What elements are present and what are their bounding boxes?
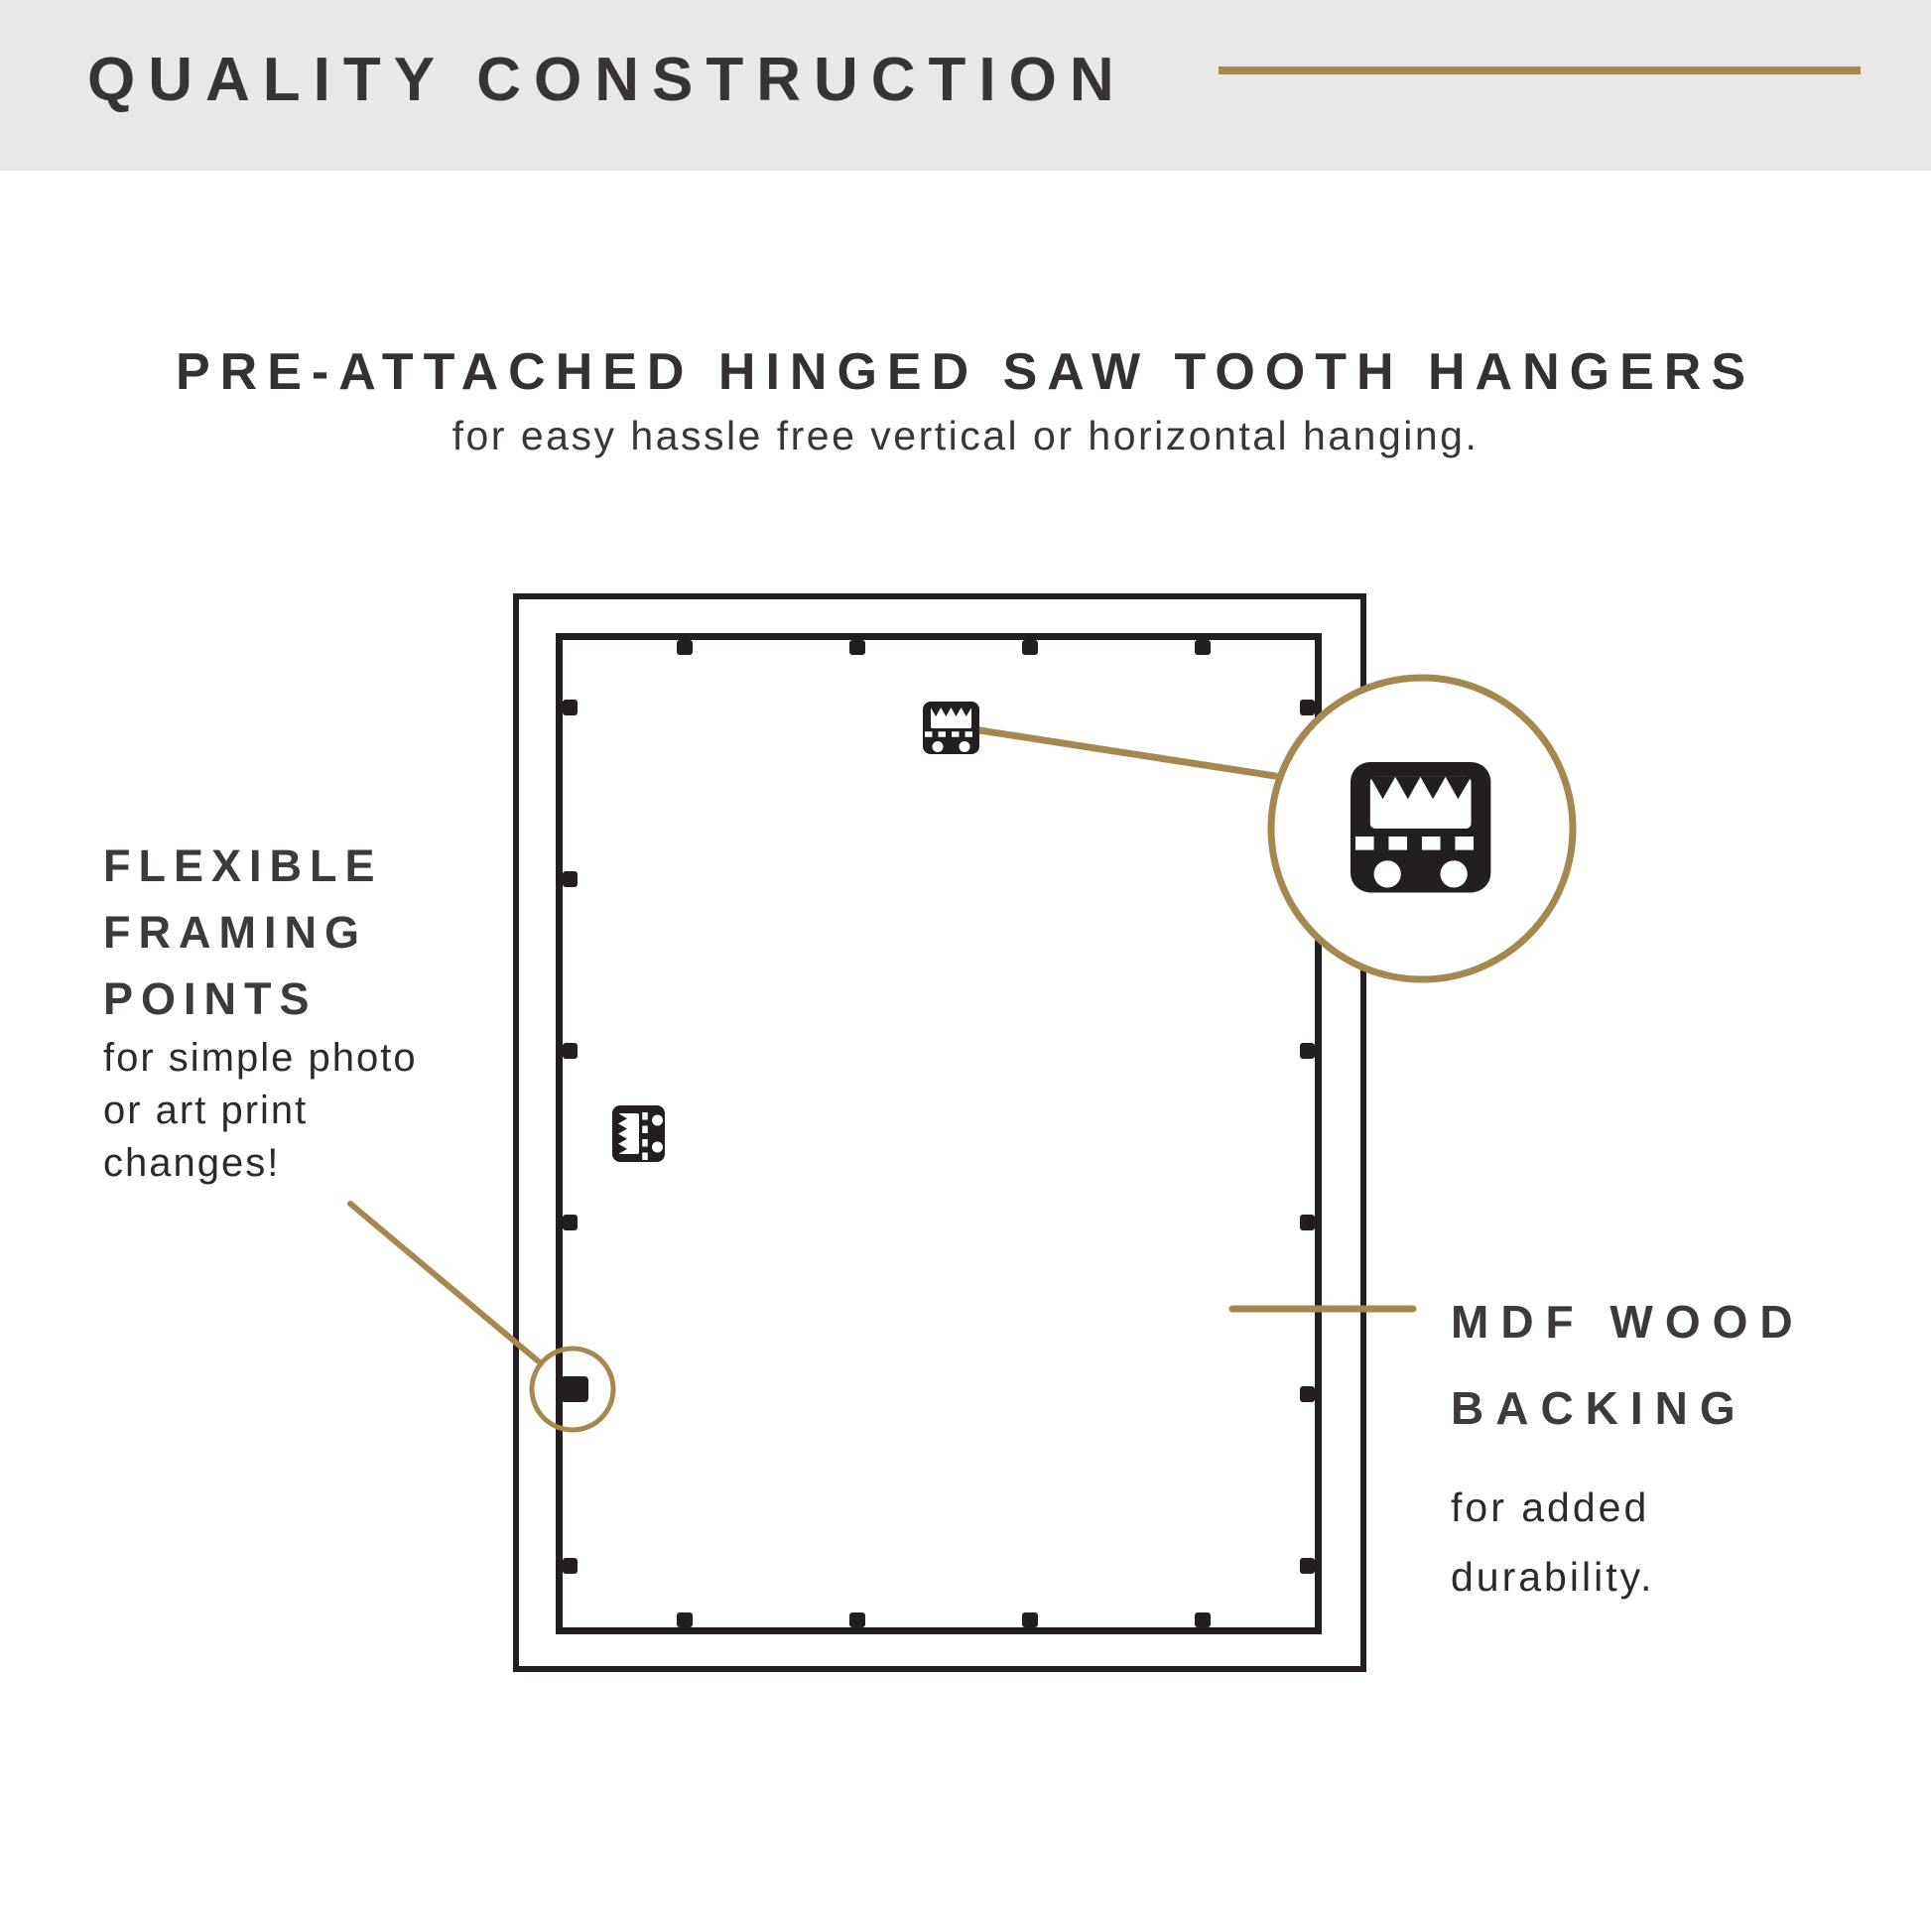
flexible-framing-points-title: FLEXIBLE FRAMING POINTS <box>103 833 383 1032</box>
callout-title-line: MDF WOOD <box>1451 1279 1805 1365</box>
callout-title-line: FLEXIBLE <box>103 833 383 899</box>
callout-body-line: for simple photo <box>103 1032 418 1085</box>
framing-point-tabs <box>563 640 1315 1627</box>
callout-title-line: POINTS <box>103 966 383 1032</box>
framing-point-tab <box>1195 640 1211 655</box>
framing-point-tab <box>677 640 693 655</box>
mdf-wood-backing-body: for added durability. <box>1451 1473 1654 1611</box>
sawtooth-hanger-icon <box>923 702 979 754</box>
flexible-framing-points-body: for simple photo or art print changes! <box>103 1032 418 1190</box>
framing-point-tab <box>849 640 865 655</box>
callout-title-line: FRAMING <box>103 899 383 966</box>
framing-point-tab <box>563 700 578 715</box>
framing-point-tab <box>1022 640 1038 655</box>
framing-point-tab <box>563 1043 578 1059</box>
framing-point-tab <box>1022 1612 1038 1627</box>
frame-inner-rect <box>560 637 1319 1631</box>
framing-point-tab <box>563 1215 578 1230</box>
framing-point-tab <box>1300 1215 1315 1230</box>
callout-body-line: durability. <box>1451 1542 1654 1611</box>
framing-point-leader-line <box>350 1204 541 1363</box>
framing-point-tab <box>677 1612 693 1627</box>
framing-point-tab <box>849 1612 865 1627</box>
callout-body-line: for added <box>1451 1473 1654 1542</box>
framing-point-tab-highlighted <box>561 1376 588 1402</box>
framing-point-tab <box>1300 700 1315 715</box>
callout-body-line: changes! <box>103 1137 418 1190</box>
leader-lines <box>350 730 1413 1363</box>
callout-body-line: or art print <box>103 1085 418 1137</box>
framing-point-tab <box>563 1558 578 1574</box>
hinged-sawtooth-hanger-icon <box>612 1105 665 1162</box>
framing-point-tab <box>1195 1612 1211 1627</box>
framing-point-tab <box>563 871 578 887</box>
mdf-wood-backing-title: MDF WOOD BACKING <box>1451 1279 1805 1452</box>
framing-point-tab <box>1300 1386 1315 1402</box>
framing-point-tab <box>1300 1558 1315 1574</box>
hanger-leader-line <box>979 730 1275 776</box>
callout-title-line: BACKING <box>1451 1365 1805 1452</box>
framing-point-tab <box>1300 1043 1315 1059</box>
magnified-sawtooth-hanger-icon <box>1351 762 1490 892</box>
